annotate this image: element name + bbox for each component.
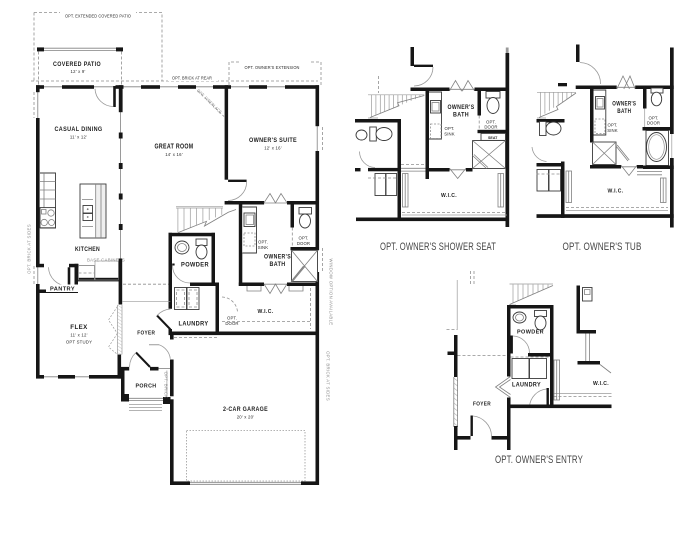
svg-text:W.I.C.: W.I.C.: [441, 193, 457, 199]
svg-text:LAUNDRY: LAUNDRY: [179, 321, 209, 328]
svg-text:KITCHEN: KITCHEN: [75, 246, 100, 253]
svg-text:SINK: SINK: [607, 128, 617, 133]
svg-text:OPT.: OPT.: [608, 123, 618, 128]
svg-text:OPT. BRICK: OPT. BRICK: [164, 372, 169, 399]
svg-text:POWDER: POWDER: [181, 263, 209, 269]
svg-text:OPT STUDY: OPT STUDY: [66, 340, 92, 345]
svg-text:OPT. BRICK AT SIDES: OPT. BRICK AT SIDES: [27, 224, 32, 274]
svg-text:20' x 20': 20' x 20': [237, 415, 255, 420]
svg-text:12' x 16': 12' x 16': [264, 146, 282, 151]
svg-text:PORCH: PORCH: [136, 384, 157, 390]
svg-text:BATH: BATH: [453, 113, 469, 119]
svg-text:12' x 9': 12' x 9': [71, 69, 86, 74]
svg-text:FLEX: FLEX: [70, 324, 88, 331]
svg-text:GREAT ROOM: GREAT ROOM: [155, 144, 194, 151]
svg-text:11' x 12': 11' x 12': [70, 333, 87, 338]
svg-text:BATH: BATH: [617, 109, 631, 115]
svg-text:OPT. BRICK AT REAR: OPT. BRICK AT REAR: [172, 76, 212, 81]
svg-text:OWNER'S: OWNER'S: [448, 105, 475, 111]
svg-text:OPT. OWNER'S ENTRY: OPT. OWNER'S ENTRY: [495, 454, 583, 466]
svg-text:SEAT: SEAT: [488, 136, 498, 140]
svg-text:2-CAR GARAGE: 2-CAR GARAGE: [223, 406, 268, 413]
svg-text:WINDOW OPTION AVAILABLE: WINDOW OPTION AVAILABLE: [329, 259, 334, 326]
svg-text:CASUAL DINING: CASUAL DINING: [55, 126, 103, 133]
svg-text:OPT.: OPT.: [227, 316, 237, 321]
svg-text:FOYER: FOYER: [473, 402, 491, 408]
svg-text:DOOR: DOOR: [647, 121, 660, 126]
svg-text:OPT.: OPT.: [445, 126, 455, 131]
svg-text:14' x 16': 14' x 16': [165, 152, 183, 157]
svg-text:SINK: SINK: [258, 245, 268, 250]
svg-text:OPT. OWNER'S EXTENSION: OPT. OWNER'S EXTENSION: [245, 65, 300, 70]
svg-text:DOOR: DOOR: [484, 124, 497, 129]
svg-text:OPT. EXTENDED COVERED PATIO: OPT. EXTENDED COVERED PATIO: [65, 14, 132, 19]
svg-text:W.I.C.: W.I.C.: [593, 381, 609, 387]
svg-text:PANTRY: PANTRY: [50, 287, 75, 293]
svg-text:11' x 12': 11' x 12': [70, 135, 87, 140]
svg-text:DOOR: DOOR: [225, 321, 238, 326]
svg-text:OPT. OWNER'S TUB: OPT. OWNER'S TUB: [563, 241, 642, 253]
svg-text:OWNER'S: OWNER'S: [612, 102, 636, 108]
svg-text:OPT.: OPT.: [299, 236, 309, 241]
svg-text:W.I.C.: W.I.C.: [258, 309, 274, 315]
svg-text:OWNER'S: OWNER'S: [264, 255, 291, 261]
svg-text:LAUNDRY: LAUNDRY: [512, 383, 541, 389]
svg-text:FOYER: FOYER: [137, 331, 155, 337]
svg-text:OPT.: OPT.: [258, 240, 268, 245]
svg-text:W.I.C.: W.I.C.: [608, 189, 624, 195]
svg-text:OPT. BRICK AT SIDES: OPT. BRICK AT SIDES: [326, 351, 331, 401]
svg-text:POWDER: POWDER: [517, 330, 544, 336]
svg-text:BATH: BATH: [270, 262, 286, 268]
svg-text:OPT. OWNER'S SHOWER SEAT: OPT. OWNER'S SHOWER SEAT: [380, 241, 496, 253]
svg-text:OWNER'S SUITE: OWNER'S SUITE: [249, 137, 297, 144]
svg-text:COVERED PATIO: COVERED PATIO: [53, 62, 101, 68]
svg-text:DOOR: DOOR: [297, 241, 310, 246]
svg-text:SINK: SINK: [444, 132, 454, 137]
